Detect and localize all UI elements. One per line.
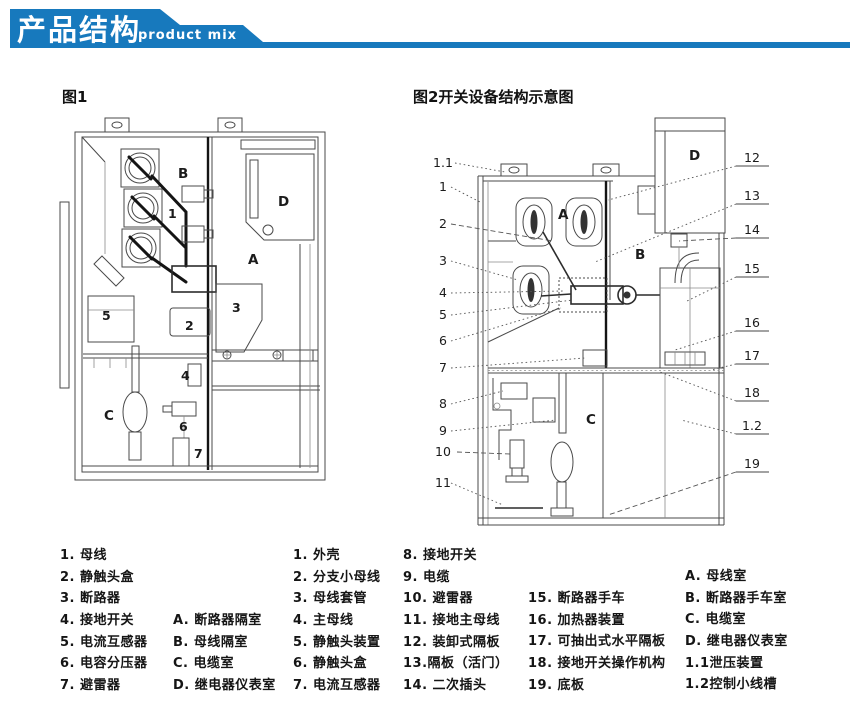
fig2-callout-16: 16: [744, 315, 760, 330]
fig2-horizontal-partition: [488, 368, 724, 373]
legend-item: 4. 接地开关: [60, 610, 148, 632]
legend-item: 7. 电流互感器: [293, 675, 381, 697]
fig2-callout-17: 17: [744, 348, 760, 363]
page-subtitle: product mix: [138, 28, 237, 43]
legend-fig2-compartments: A. 母线室 B. 断路器手车室 C. 电缆室 D. 继电器仪表室 1.1泄压装…: [685, 566, 788, 696]
fig1-label-B: B: [178, 166, 188, 182]
fig1-lifting-lugs: [105, 118, 242, 132]
fig2-callout-6: 6: [439, 333, 447, 348]
fig2-label-D: D: [689, 148, 700, 164]
legend-item: 1.1泄压装置: [685, 653, 788, 675]
fig2-label-B: B: [635, 247, 645, 263]
fig1-label-4: 4: [181, 368, 190, 383]
legend-item: C. 电缆室: [173, 653, 276, 675]
fig1-capacitor-divider-box: [88, 296, 134, 342]
fig2-callout-1.2: 1.2: [742, 418, 762, 433]
fig2-callout-19: 19: [744, 456, 760, 471]
fig2-cable-compartment: [493, 350, 665, 518]
fig1-label-1: 1: [168, 206, 177, 221]
fig1-arrester: [173, 438, 189, 466]
fig2-bus-compartment: [488, 181, 610, 368]
fig2-callout-18: 18: [744, 385, 760, 400]
fig1-shelf: [83, 354, 208, 368]
legend-item: B. 断路器手车室: [685, 588, 788, 610]
fig2-breaker-trolley: [660, 234, 720, 368]
figure2-diagram: 1.1 1 2 3 4 5 6 7 8 9 10 11 12 13: [413, 110, 787, 540]
legend-item: 7. 避雷器: [60, 675, 148, 697]
legend-item: A. 母线室: [685, 566, 788, 588]
fig1-label-3: 3: [232, 300, 241, 315]
fig2-callout-9: 9: [439, 423, 447, 438]
legend-item: 4. 主母线: [293, 610, 381, 632]
legend-item: 1. 母线: [60, 545, 148, 567]
fig2-callout-15: 15: [744, 261, 760, 276]
legend-item: 16. 加热器装置: [528, 610, 666, 632]
legend-fig2-parts-a: 1. 外壳 2. 分支小母线 3. 母线套管 4. 主母线 5. 静触头装置 6…: [293, 545, 381, 697]
legend-item: 15. 断路器手车: [528, 588, 666, 610]
fig2-lifting-lugs: [501, 164, 619, 176]
fig1-relay-compartment: [241, 140, 315, 240]
legend-item: 18. 接地开关操作机构: [528, 653, 666, 675]
fig1-label-A: A: [248, 252, 259, 268]
fig2-label-A: A: [558, 207, 569, 223]
fig2-callout-12: 12: [744, 150, 760, 165]
legend-fig2-parts-b: 8. 接地开关 9. 电缆 10. 避雷器 11. 接地主母线 12. 装卸式隔…: [403, 545, 509, 697]
fig2-callout-7: 7: [439, 360, 447, 375]
legend-item: 1.2控制小线槽: [685, 674, 788, 696]
fig2-callout-5: 5: [439, 307, 447, 322]
fig2-callout-3: 3: [439, 253, 447, 268]
figure1-caption: 图1: [62, 86, 87, 107]
legend-item: 14. 二次插头: [403, 675, 509, 697]
legend-item: 8. 接地开关: [403, 545, 509, 567]
legend-item: 1. 外壳: [293, 545, 381, 567]
legend-item: D. 继电器仪表室: [173, 675, 276, 697]
fig2-label-C: C: [586, 412, 596, 428]
legend-item: 13.隔板（活门）: [403, 653, 509, 675]
catalog-page: 产品结构 product mix 图1 图2开关设备结构示意图: [0, 0, 850, 728]
legend-item: 17. 可抽出式水平隔板: [528, 631, 666, 653]
legend-item: 2. 分支小母线: [293, 567, 381, 589]
fig2-callout-13: 13: [744, 188, 760, 203]
fig2-left-callouts: 1.1 1 2 3 4 5 6 7 8 9 10 11: [433, 155, 453, 490]
fig1-labels: B 1 D A 5 2 3 4 C 6 7: [102, 166, 289, 461]
legend-fig2-parts-c: 15. 断路器手车 16. 加热器装置 17. 可抽出式水平隔板 18. 接地开…: [528, 588, 666, 696]
legend-fig1-compartments: A. 断路器隔室 B. 母线隔室 C. 电缆室 D. 继电器仪表室: [173, 610, 276, 697]
legend-item: 2. 静触头盒: [60, 567, 148, 589]
fig1-label-D: D: [278, 194, 289, 210]
fig1-cable-termination: [123, 346, 147, 460]
legend-item: 6. 静触头盒: [293, 653, 381, 675]
figure2-caption: 图2开关设备结构示意图: [413, 86, 573, 107]
legend-item: 11. 接地主母线: [403, 610, 509, 632]
fig1-label-5: 5: [102, 308, 111, 323]
fig1-label-2: 2: [185, 318, 194, 333]
legend-item: A. 断路器隔室: [173, 610, 276, 632]
fig2-callout-4: 4: [439, 285, 447, 300]
fig2-callout-1: 1: [439, 179, 447, 194]
fig2-right-callouts: 12 13 14 15 16 17 18 1.2 19: [742, 150, 762, 471]
legend-item: 3. 断路器: [60, 588, 148, 610]
legend-item: 12. 装卸式隔板: [403, 632, 509, 654]
fig1-cabinet-outline: [60, 132, 325, 480]
fig2-callout-8: 8: [439, 396, 447, 411]
fig1-bushings: [94, 149, 162, 286]
fig2-callout-14: 14: [744, 222, 760, 237]
legend-item: B. 母线隔室: [173, 632, 276, 654]
legend-item: C. 电缆室: [685, 609, 788, 631]
figure1-diagram: B 1 D A 5 2 3 4 C 6 7: [58, 114, 342, 486]
legend-fig1-parts: 1. 母线 2. 静触头盒 3. 断路器 4. 接地开关 5. 电流互感器 6.…: [60, 545, 148, 697]
legend-item: 9. 电缆: [403, 567, 509, 589]
fig1-label-C: C: [104, 408, 114, 424]
legend-item: 3. 母线套管: [293, 588, 381, 610]
fig2-callout-10: 10: [435, 444, 451, 459]
fig2-right-callout-leaders: [595, 166, 769, 515]
fig1-rails: [212, 244, 320, 468]
fig1-label-7: 7: [194, 446, 203, 461]
fig1-label-6: 6: [179, 419, 188, 434]
legend-item: 5. 电流互感器: [60, 632, 148, 654]
legend-item: 19. 底板: [528, 675, 666, 697]
legend-item: D. 继电器仪表室: [685, 631, 788, 653]
legend-item: 5. 静触头装置: [293, 632, 381, 654]
fig2-callout-2: 2: [439, 216, 447, 231]
fig2-callout-1.1: 1.1: [433, 155, 453, 170]
legend-item: 10. 避雷器: [403, 588, 509, 610]
fig2-callout-11: 11: [435, 475, 451, 490]
page-title: 产品结构: [17, 7, 141, 49]
legend-item: 6. 电容分压器: [60, 653, 148, 675]
